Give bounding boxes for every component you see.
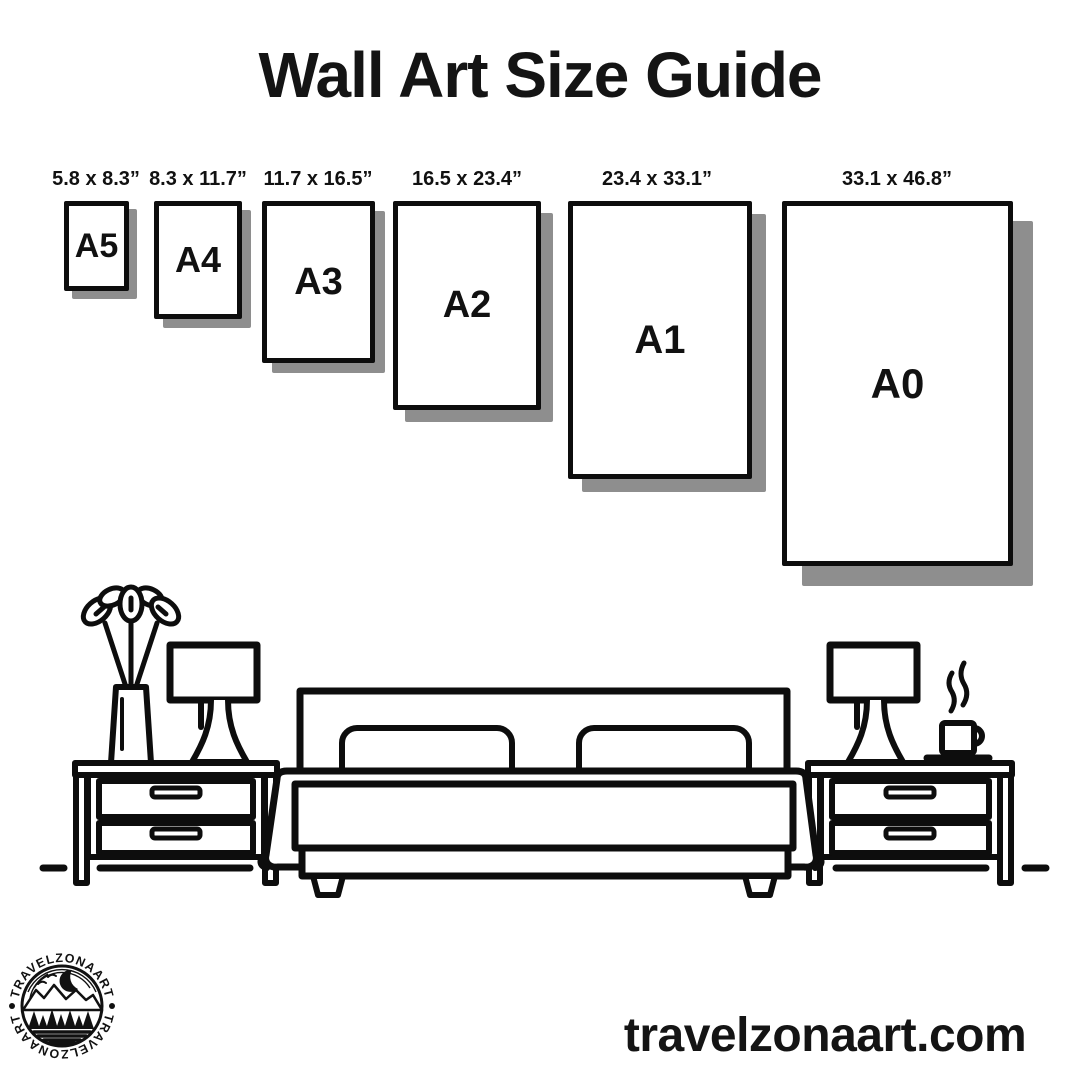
size-frame-a4: A4 <box>154 201 242 319</box>
size-dimensions-a2: 16.5 x 23.4” <box>392 168 542 191</box>
size-code-a0: A0 <box>871 360 925 408</box>
website-text: travelzonaart.com <box>600 1008 1050 1063</box>
moon-icon <box>60 970 78 992</box>
bed-base <box>302 848 788 876</box>
page-title: Wall Art Size Guide <box>0 38 1080 112</box>
size-frame-a1: A1 <box>568 201 752 479</box>
bedroom-illustration <box>0 577 1080 907</box>
table-lamp-left-icon <box>170 645 257 762</box>
size-frame-a0: A0 <box>782 201 1013 566</box>
size-dimensions-a3: 11.7 x 16.5” <box>243 168 393 191</box>
brand-logo: TRAVELZONAART TRAVELZONAART <box>0 928 142 1084</box>
coffee-mug-icon <box>927 663 989 758</box>
size-code-a4: A4 <box>175 239 221 281</box>
duvet <box>295 784 793 848</box>
size-frame-a5: A5 <box>64 201 129 291</box>
badge-dot-left <box>9 1003 15 1009</box>
size-frame-a2: A2 <box>393 201 541 410</box>
badge-dot-right <box>109 1003 115 1009</box>
table-lamp-right-icon <box>830 645 917 762</box>
size-code-a5: A5 <box>75 227 118 266</box>
mountains-icon <box>23 985 102 1010</box>
size-code-a2: A2 <box>443 284 492 327</box>
size-dimensions-a1: 23.4 x 33.1” <box>582 168 732 191</box>
size-frame-a3: A3 <box>262 201 375 363</box>
bed-icon <box>260 691 821 895</box>
size-code-a3: A3 <box>294 261 343 304</box>
size-dimensions-a0: 33.1 x 46.8” <box>822 168 972 191</box>
size-code-a1: A1 <box>634 318 685 363</box>
size-guide-page: Wall Art Size Guide 5.8 x 8.3” 8.3 x 11.… <box>0 0 1080 1080</box>
steam-icon <box>949 663 967 711</box>
pine-trees-icon <box>28 1009 94 1029</box>
